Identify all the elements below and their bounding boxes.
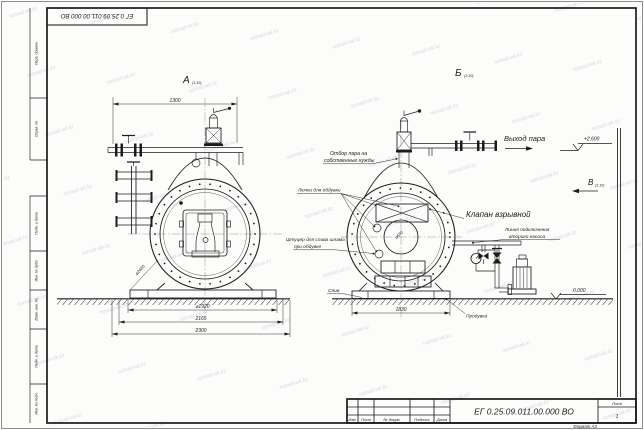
drain-label: Слив <box>328 288 340 294</box>
view-b-scale: (1:10) <box>464 74 473 78</box>
dim-1830-value: 1830 <box>395 307 406 313</box>
level-zero-value: 0,000 <box>573 288 586 294</box>
view-a-label: А <box>182 75 190 86</box>
margin-label: Инв. № дубл. <box>34 259 38 281</box>
margin-label: Взам. инв. № <box>34 298 38 320</box>
sludge-line2: при обдувке <box>294 244 321 250</box>
sheet-number: 1 <box>616 414 619 420</box>
sheet-label: Лист <box>611 401 623 406</box>
header-list: Лист <box>360 417 372 422</box>
second-pump-line2: второго насоса <box>509 235 545 240</box>
document-designation: ЕГ 0.25.09.011.00.000 ВО <box>474 407 574 417</box>
margin-label: Справ. № <box>35 121 39 137</box>
stamp-designation: ЕГ 0.25.09.011.00.000 ВО <box>61 12 134 19</box>
own-needs-line1: Отбор пара на <box>330 151 367 157</box>
ground-left <box>57 299 290 305</box>
view-v-label: В <box>588 178 594 187</box>
second-pump-line1: Линия подключения <box>504 227 550 233</box>
margin-label: Подп. и дата <box>35 212 39 235</box>
explosion-valve-label: Клапан взрывной <box>466 210 531 219</box>
margin-label: Инв. № подл. <box>34 392 38 414</box>
steam-out-label: Выход пара <box>504 134 545 143</box>
view-v-scale: (1:10) <box>595 184 604 188</box>
dim-mid-value: 2165 <box>194 316 206 322</box>
drawing-sheet: nomad-wk.kz nomad-wk.kz Перв. примен. Сп… <box>0 0 644 430</box>
drawing-canvas: nomad-wk.kz nomad-wk.kz Перв. примен. Сп… <box>0 0 644 430</box>
ground-right <box>332 299 613 305</box>
header-doc: № докум. <box>383 417 400 422</box>
header-izm: Изм. <box>348 417 356 422</box>
view-a-scale: (1:10) <box>192 81 201 85</box>
header-sign: Подпись <box>414 417 429 422</box>
level-top-value: +2,600 <box>584 137 600 143</box>
blow-hatches-label: Лючки для обдувки <box>297 188 341 194</box>
dim-base-value: 2300 <box>194 328 206 334</box>
watermark-layer <box>3 3 641 427</box>
view-b-label: Б <box>455 68 462 79</box>
dim-1300-value: 1300 <box>169 98 180 104</box>
margin-label: Подп. и дата <box>34 345 38 368</box>
own-needs-line2: собственные нужды <box>324 158 375 164</box>
sludge-line1: Штуцер для слива шлама <box>286 237 345 243</box>
margin-label: Перв. примен. <box>35 41 39 65</box>
header-date: Дата <box>436 417 448 422</box>
format-note: Формат А3 <box>573 424 597 429</box>
blowdown-label: Продувка <box>466 314 488 320</box>
